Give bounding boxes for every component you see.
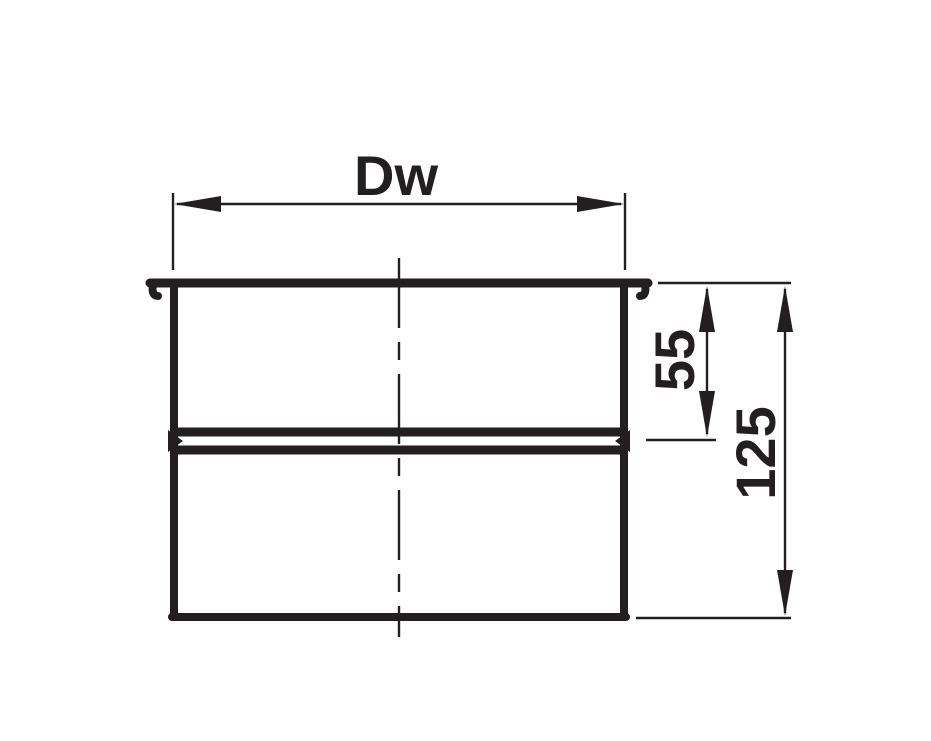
dim-55-arrowhead-up [699,286,715,332]
technical-drawing-canvas: Dw 55 125 [0,0,931,741]
dw-dimension-label: Dw [354,144,438,207]
dim-55-label: 55 [643,329,706,391]
dimension-dw: Dw [173,144,625,270]
dw-arrowhead-left [174,196,221,212]
dim-125-label: 125 [724,406,787,499]
dim-125-arrowhead-down [777,570,793,616]
dim-125-arrowhead-up [777,286,793,332]
dw-arrowhead-right [577,196,624,212]
dim-55-arrowhead-down [699,391,715,437]
part-outline [150,283,648,617]
pipe-adapter-drawing: Dw 55 125 [0,0,931,741]
